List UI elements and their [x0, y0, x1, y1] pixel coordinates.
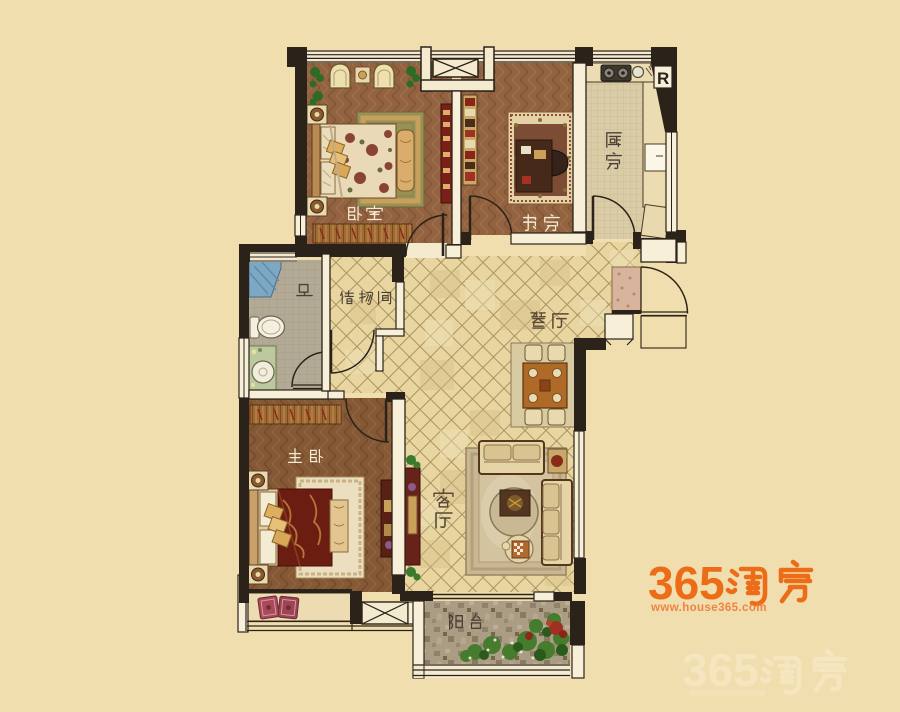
svg-text:R: R [657, 69, 669, 88]
svg-text:365: 365 [682, 644, 759, 696]
svg-text:www.house365.com: www.house365.com [650, 602, 767, 614]
